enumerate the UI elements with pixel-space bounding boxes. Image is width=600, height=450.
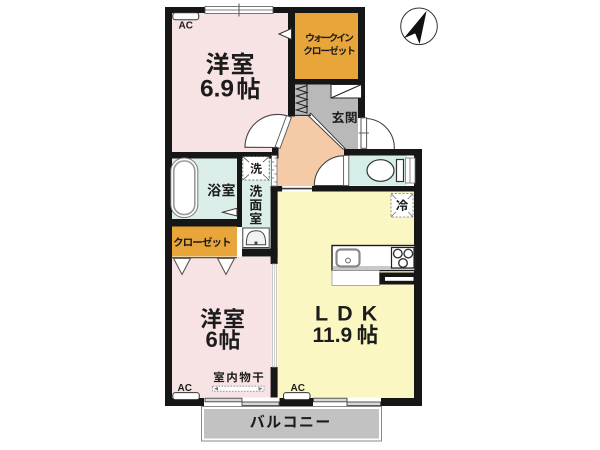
svg-text:6.9: 6.9 bbox=[200, 76, 234, 103]
svg-text:LDK: LDK bbox=[315, 302, 386, 326]
svg-text:11.9: 11.9 bbox=[313, 324, 353, 347]
svg-text:AC: AC bbox=[179, 21, 193, 32]
svg-text:6: 6 bbox=[206, 327, 218, 352]
